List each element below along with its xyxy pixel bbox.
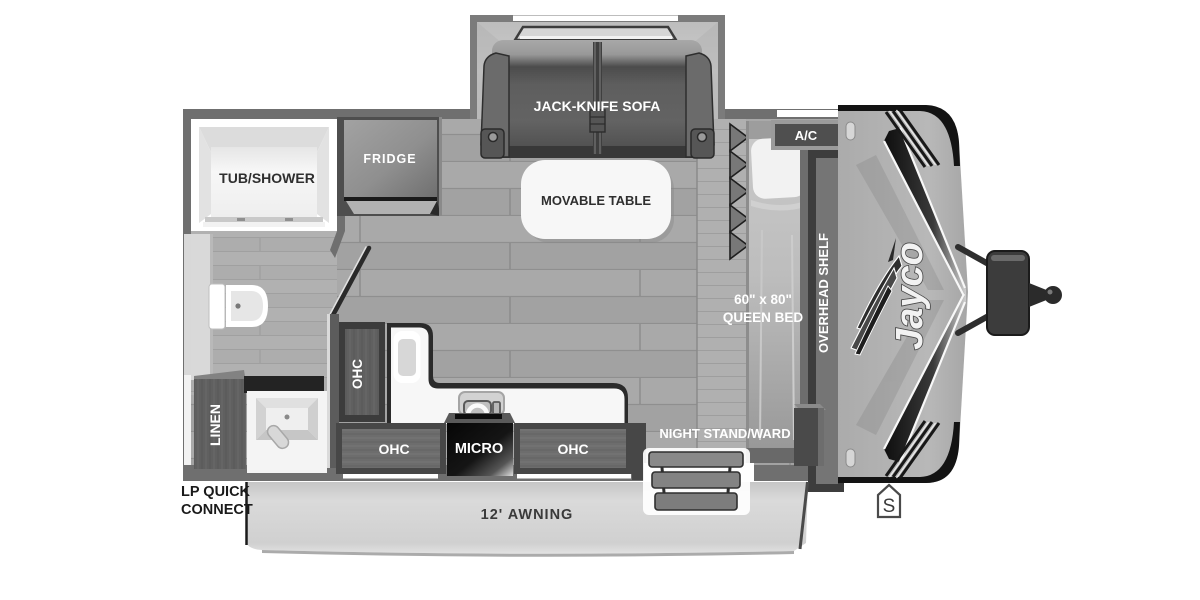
svg-text:CONNECT: CONNECT: [181, 502, 253, 518]
svg-text:NIGHT STAND/WARD: NIGHT STAND/WARD: [659, 426, 790, 441]
svg-text:OHC: OHC: [378, 441, 409, 457]
svg-text:S: S: [883, 496, 896, 517]
svg-text:FRIDGE: FRIDGE: [363, 152, 416, 166]
svg-text:A/C: A/C: [795, 128, 818, 143]
svg-text:MOVABLE TABLE: MOVABLE TABLE: [541, 193, 651, 208]
svg-text:MICRO: MICRO: [455, 441, 503, 457]
svg-text:LP QUICK: LP QUICK: [181, 484, 251, 500]
svg-text:Jayco: Jayco: [889, 242, 931, 350]
svg-text:QUEEN BED: QUEEN BED: [723, 310, 804, 325]
svg-text:60" x 80": 60" x 80": [734, 292, 792, 307]
svg-text:LINEN: LINEN: [207, 404, 223, 446]
svg-text:OHC: OHC: [350, 359, 365, 389]
svg-text:JACK-KNIFE SOFA: JACK-KNIFE SOFA: [534, 98, 661, 114]
svg-text:OVERHEAD SHELF: OVERHEAD SHELF: [816, 233, 831, 353]
svg-text:OHC: OHC: [557, 441, 588, 457]
svg-text:TUB/SHOWER: TUB/SHOWER: [219, 170, 315, 186]
svg-text:12' AWNING: 12' AWNING: [481, 507, 574, 523]
